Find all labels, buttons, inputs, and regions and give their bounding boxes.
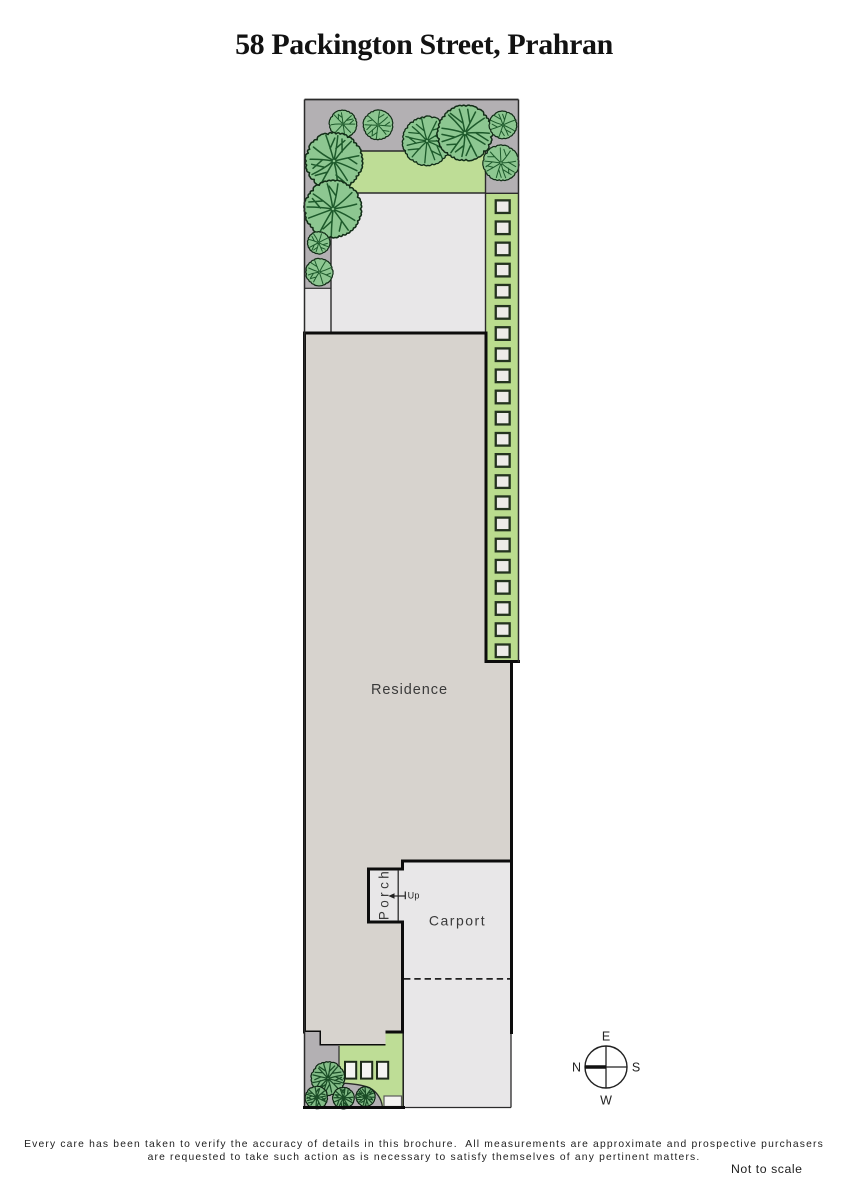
svg-text:Up: Up	[408, 891, 420, 901]
svg-text:W: W	[600, 1094, 612, 1108]
svg-text:E: E	[602, 1030, 610, 1044]
svg-text:Porch: Porch	[376, 868, 391, 920]
svg-text:N: N	[572, 1061, 581, 1075]
svg-text:Residence: Residence	[371, 682, 448, 698]
svg-text:Carport: Carport	[429, 913, 486, 929]
svg-text:S: S	[632, 1061, 640, 1075]
